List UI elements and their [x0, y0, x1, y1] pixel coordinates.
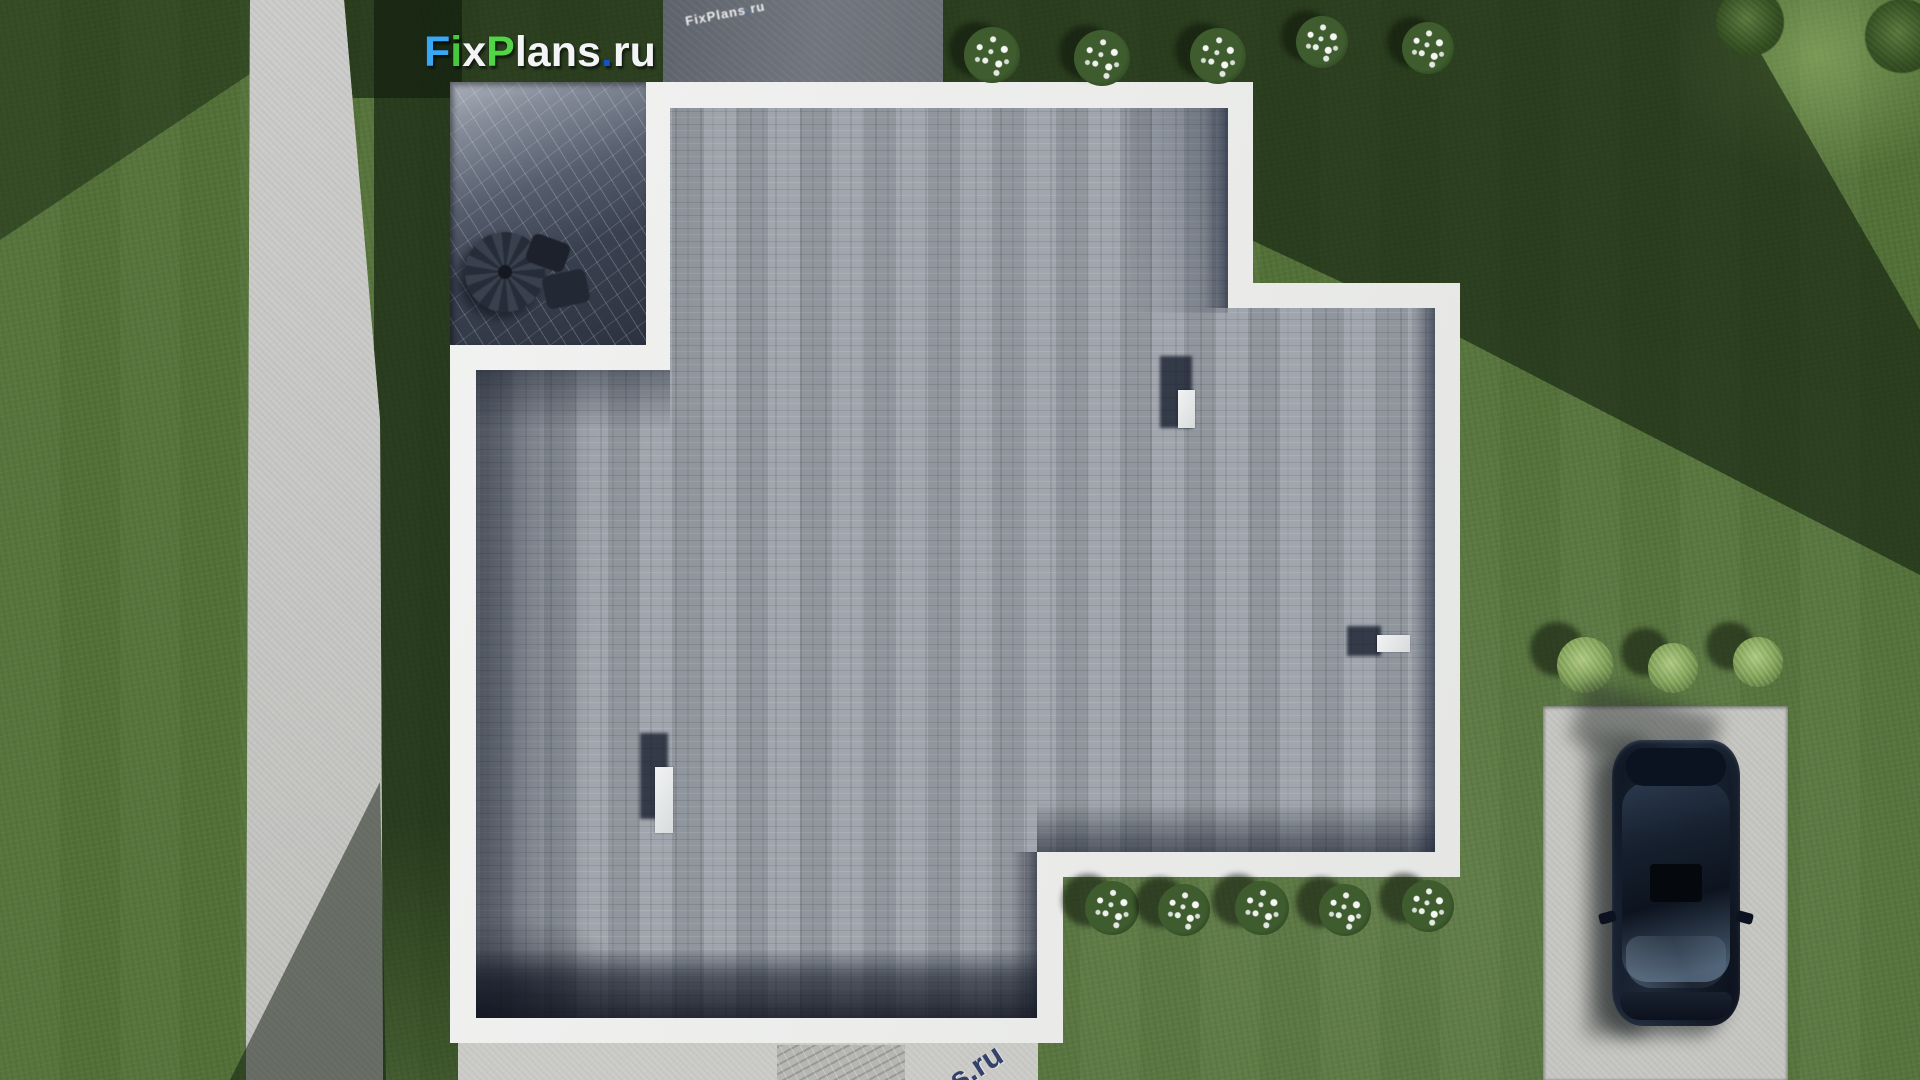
roof-shade-right-lower [1410, 308, 1435, 852]
flower-bush [1402, 880, 1454, 932]
flower-bush [1074, 30, 1130, 86]
roof-shade-step [1012, 852, 1037, 1018]
logo-letter: lans [515, 28, 601, 76]
flower-bush [1402, 22, 1454, 74]
roof-shade-below-terrace [476, 370, 670, 430]
flower-bush [1235, 881, 1289, 935]
lawn-shadow-corner [0, 0, 260, 250]
roof-vent [1377, 635, 1410, 652]
roof-shade-bottom-left-corner [476, 890, 696, 1018]
logo-letter: i [450, 28, 462, 76]
parked-car [1612, 740, 1740, 1026]
flower-bush [964, 27, 1020, 83]
roof-vent [1178, 390, 1195, 428]
flower-bush [1158, 884, 1210, 936]
green-bush [1733, 637, 1783, 687]
car-rear-window [1626, 748, 1726, 786]
logo-letter: F [424, 28, 450, 76]
stone-texture-patch [777, 1045, 905, 1080]
flower-bush [1319, 884, 1371, 936]
fixplans-logo-watermark: FixPlans.ru [424, 28, 656, 77]
logo-letter: x [462, 28, 486, 76]
green-bush [1648, 643, 1698, 693]
flower-bush [1085, 881, 1139, 935]
logo-letter: ru [613, 28, 656, 76]
flower-bush [1190, 28, 1246, 84]
flower-bush [1296, 16, 1348, 68]
car-hood [1620, 992, 1732, 1020]
logo-letter: . [601, 28, 613, 76]
roof-vent [655, 767, 673, 833]
roof-shade-top-right [1130, 108, 1228, 313]
car-sunroof [1650, 864, 1702, 902]
roof-vent-shadow [1347, 626, 1381, 656]
logo-letter: P [486, 28, 515, 76]
roof-shade-bottom-right [1037, 802, 1435, 852]
building-shadow-left-strip [374, 0, 462, 1080]
aerial-roof-plan-render: FixPlans.ru FixPlans.ru Fix [0, 0, 1920, 1080]
small-watermark-suffix: ru [749, 0, 767, 16]
car-windshield [1626, 936, 1726, 988]
